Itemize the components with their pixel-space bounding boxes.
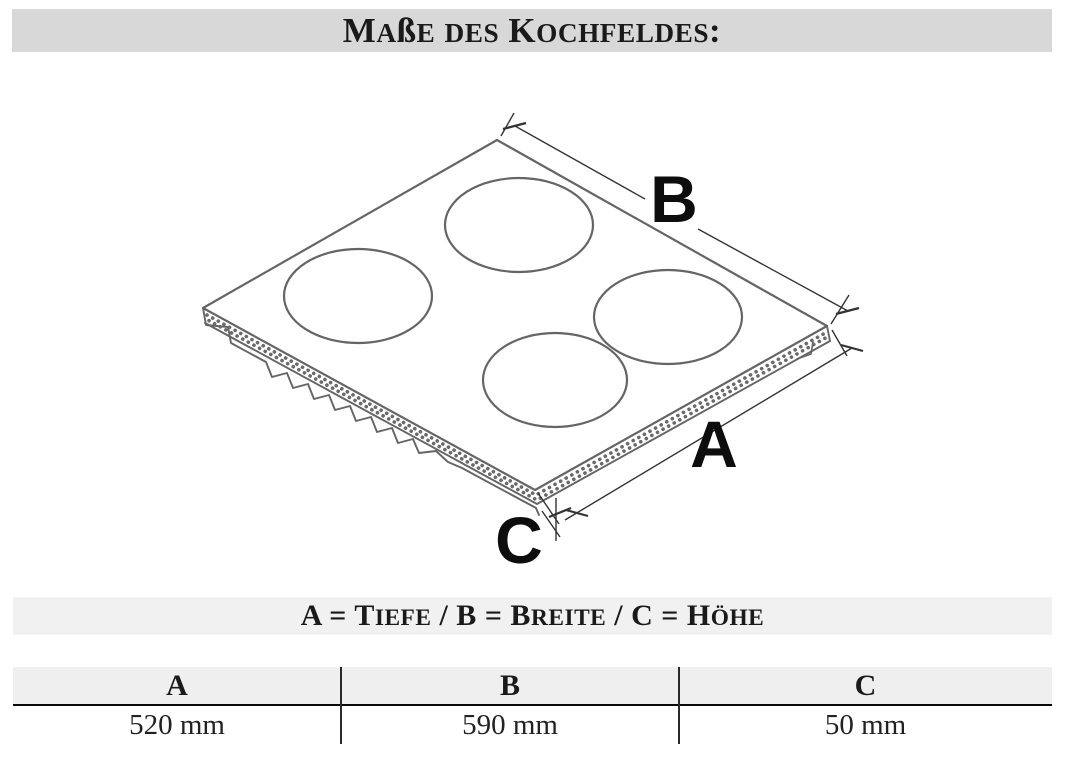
label-hoehe: C xyxy=(495,503,543,577)
legend-text: A = TIEFE / B = BREITE / C = HÖHE xyxy=(301,599,765,633)
col-header-c: C xyxy=(679,667,1052,704)
dim-a-tick-2 xyxy=(566,510,588,516)
dimensions-table: A B C 520 mm 590 mm 50 mm xyxy=(13,667,1052,744)
dim-b-ext-top xyxy=(501,113,514,136)
dim-c-tick xyxy=(549,508,571,517)
value-tiefe: 520 mm xyxy=(13,706,341,744)
label-breite: B xyxy=(650,162,698,236)
value-hoehe: 50 mm xyxy=(679,706,1052,744)
value-breite: 590 mm xyxy=(341,706,679,744)
manual-page: MAßE DES KOCHFELDES: xyxy=(0,0,1065,761)
col-header-b: B xyxy=(341,667,679,704)
dim-c-ext-lower xyxy=(542,511,560,537)
legend-bar: A = TIEFE / B = BREITE / C = HÖHE xyxy=(13,597,1052,635)
label-tiefe: A xyxy=(690,407,738,481)
cooktop-diagram: B A C xyxy=(0,0,1065,761)
right-corner-drop xyxy=(827,326,830,341)
col-header-a: A xyxy=(13,667,341,704)
